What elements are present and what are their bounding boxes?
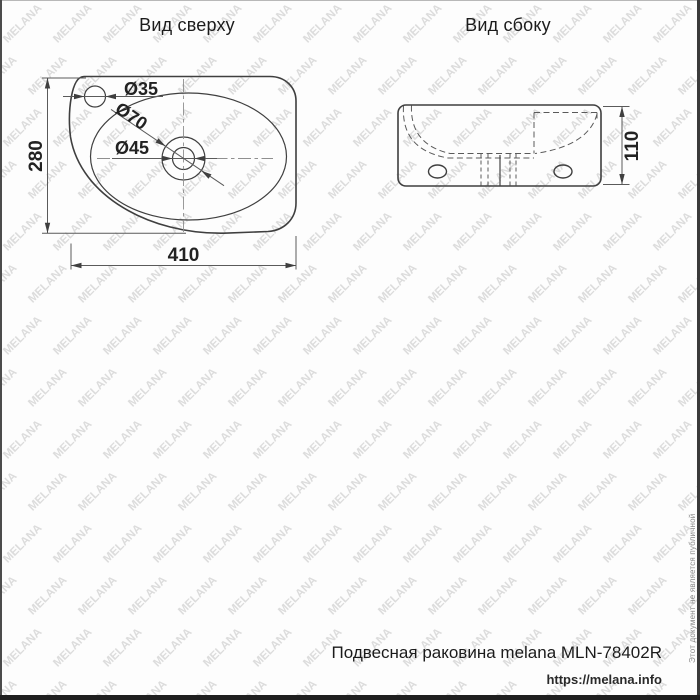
arrowhead <box>201 171 211 179</box>
dimension-height-110: 110 <box>622 116 644 176</box>
arrowhead <box>162 156 173 161</box>
arrowhead <box>45 223 50 234</box>
dimension-width-410: 410 <box>153 245 214 267</box>
page-edge-bottom <box>0 695 700 700</box>
side-view-title: Вид сбоку <box>457 15 559 36</box>
top-view-title: Вид сверху <box>136 15 238 36</box>
arrowhead <box>286 263 297 268</box>
dimension-depth-280: 280 <box>26 126 48 186</box>
arrowhead <box>195 156 206 161</box>
dimension-drain-inner-d45: Ø45 <box>102 138 162 159</box>
page-edge-top <box>0 0 700 1</box>
website-url: https://melana.info <box>546 672 662 687</box>
drawing-sheet: MELANA MELANA MELANA <box>0 0 700 700</box>
page-edge-left <box>0 0 2 700</box>
mounting-hole-left <box>429 165 447 178</box>
side-view-drawing <box>398 105 630 186</box>
arrowhead <box>45 78 50 89</box>
top-view-drawing <box>42 77 296 270</box>
arrowhead <box>71 263 82 268</box>
product-label: Подвесная раковина melana MLN-78402R <box>332 643 662 663</box>
arrowhead <box>74 94 85 99</box>
hidden-basin-lines <box>403 106 597 159</box>
mounting-hole-right <box>554 165 572 178</box>
